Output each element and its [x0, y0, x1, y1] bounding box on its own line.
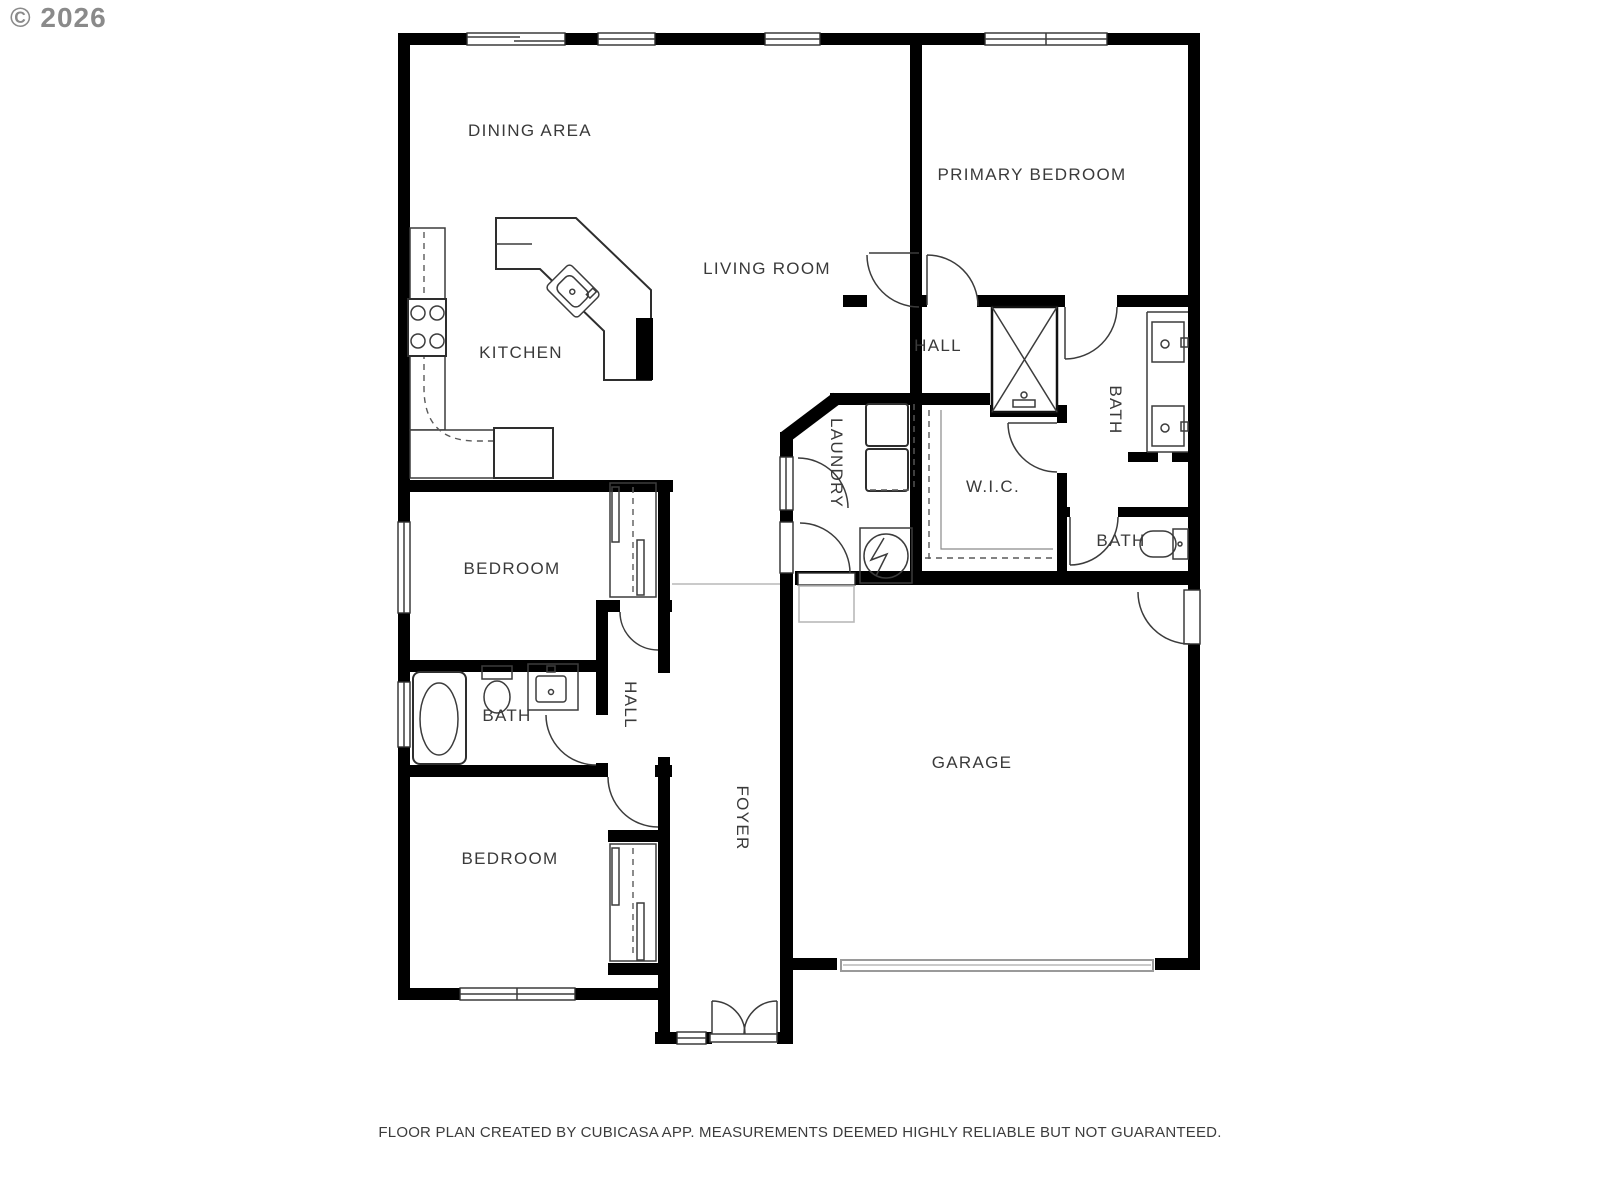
bathtub-icon: [413, 672, 466, 764]
room-label-bath-primary: BATH: [1106, 385, 1125, 434]
room-label-laundry: LAUNDRY: [827, 418, 846, 508]
primary-bath-door: [1065, 307, 1117, 359]
window-primary-bedroom: [985, 33, 1107, 45]
room-label-kitchen: KITCHEN: [479, 343, 563, 362]
toilet-small-bath-icon: [1140, 529, 1188, 559]
primary-bedroom-door: [927, 255, 978, 306]
mid-bedroom-closet: [610, 483, 656, 597]
footer-disclaimer: FLOOR PLAN CREATED BY CUBICASA APP. MEAS…: [0, 1124, 1600, 1141]
window-lower-bedroom: [460, 988, 575, 1000]
stove-icon: [408, 299, 446, 356]
window-mid-bedroom: [398, 522, 410, 613]
garage-vehicle-door: [837, 958, 1155, 971]
room-label-primary: PRIMARY BEDROOM: [938, 165, 1127, 184]
room-label-foyer: FOYER: [733, 785, 752, 850]
window-dining-1: [467, 33, 565, 45]
room-label-hall-upper: HALL: [914, 336, 962, 355]
room-label-dining: DINING AREA: [468, 121, 592, 140]
room-label-bedroom-mid: BEDROOM: [464, 559, 561, 578]
room-label-hall-lower: HALL: [621, 681, 640, 729]
room-label-bedroom-lower: BEDROOM: [462, 849, 559, 868]
refrigerator-icon: [494, 428, 553, 478]
room-label-wic: W.I.C.: [966, 477, 1020, 496]
window-laundry-wall: [780, 457, 793, 510]
garage-step-opening: [798, 573, 855, 622]
windows-layer: [398, 33, 1107, 1044]
room-label-garage: GARAGE: [932, 753, 1013, 772]
walls-layer: [398, 33, 1200, 1044]
mid-bedroom-door: [620, 612, 658, 650]
lower-bedroom-closet: [610, 844, 656, 961]
window-entry-side: [677, 1032, 706, 1044]
shower-icon: [992, 307, 1057, 412]
room-label-bath-left: BATH: [482, 706, 531, 725]
window-left-bath: [398, 682, 410, 747]
floor-plan-page: © 2026: [0, 0, 1600, 1200]
laundry-corridor-door: [780, 522, 850, 573]
garage-side-door: [1138, 590, 1200, 644]
window-living: [765, 33, 820, 45]
left-bath-door: [546, 715, 596, 765]
floor-plan-canvas: DINING AREA KITCHEN LIVING ROOM PRIMARY …: [0, 0, 1600, 1200]
lower-bedroom-door: [608, 777, 658, 827]
window-dining-2: [598, 33, 655, 45]
washer-dryer-icons: [866, 404, 914, 491]
room-label-living: LIVING ROOM: [703, 259, 831, 278]
primary-vanity-icon: [1147, 312, 1188, 452]
room-label-bath-small: BATH: [1096, 531, 1145, 550]
entry-double-door: [710, 1001, 777, 1042]
wic-door: [1008, 423, 1057, 472]
